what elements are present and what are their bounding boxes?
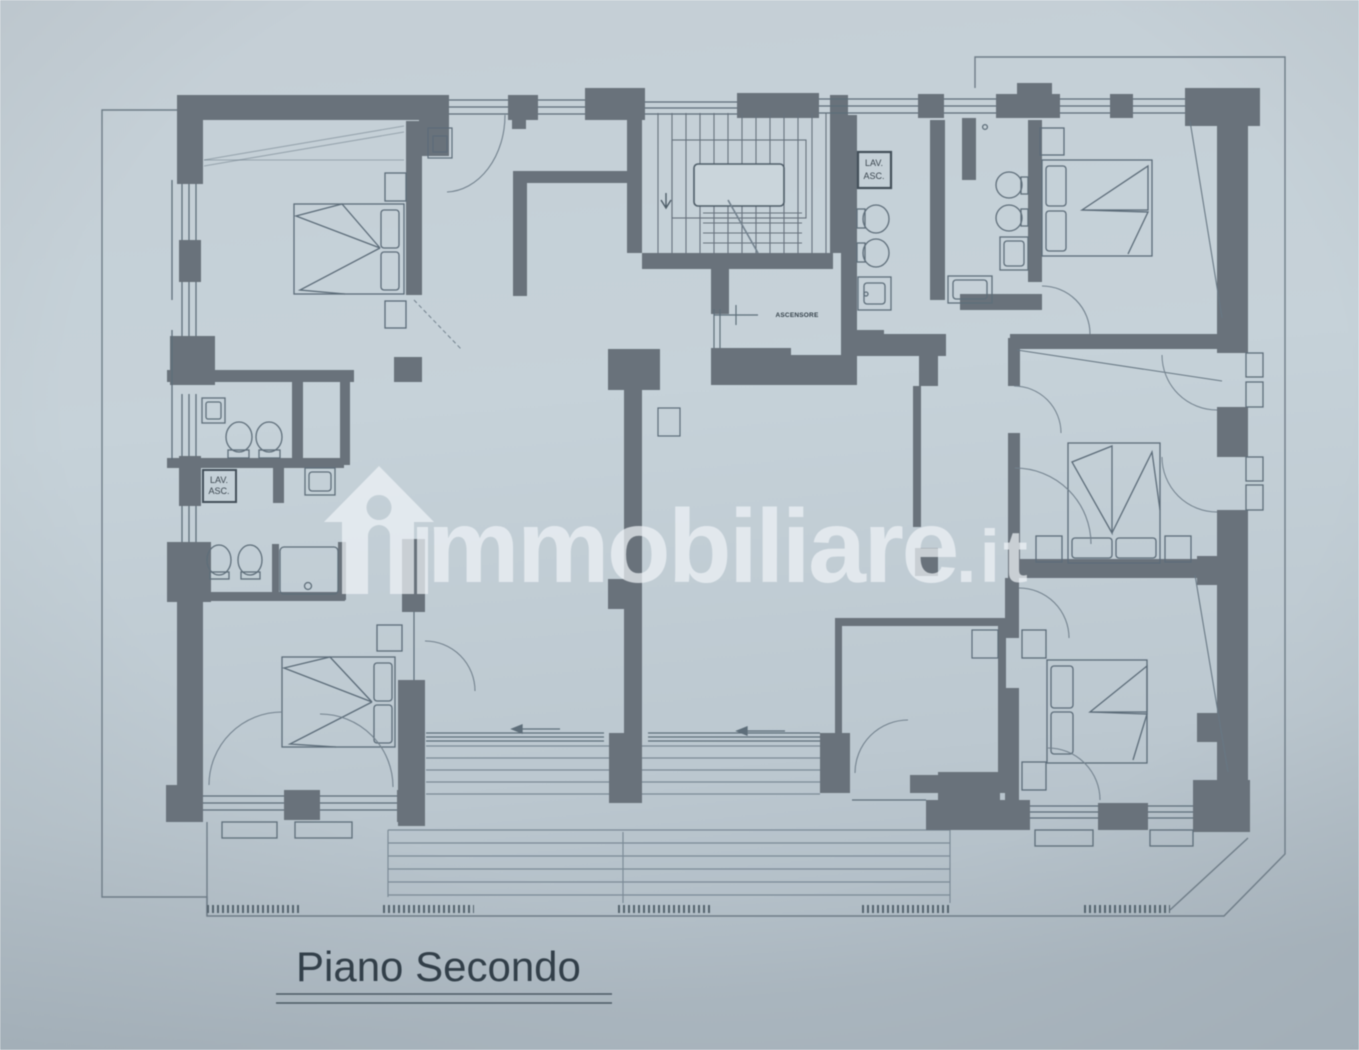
svg-text:.it: .it (956, 515, 1031, 598)
svg-text:LAV.: LAV. (865, 158, 883, 168)
svg-text:ASCENSORE: ASCENSORE (776, 312, 819, 319)
svg-text:mmobiliare: mmobiliare (427, 489, 957, 605)
svg-text:ASC.: ASC. (208, 486, 229, 496)
svg-text:LAV.: LAV. (210, 475, 228, 485)
svg-text:ASC.: ASC. (863, 171, 884, 181)
svg-text:Piano Secondo: Piano Secondo (296, 943, 581, 990)
